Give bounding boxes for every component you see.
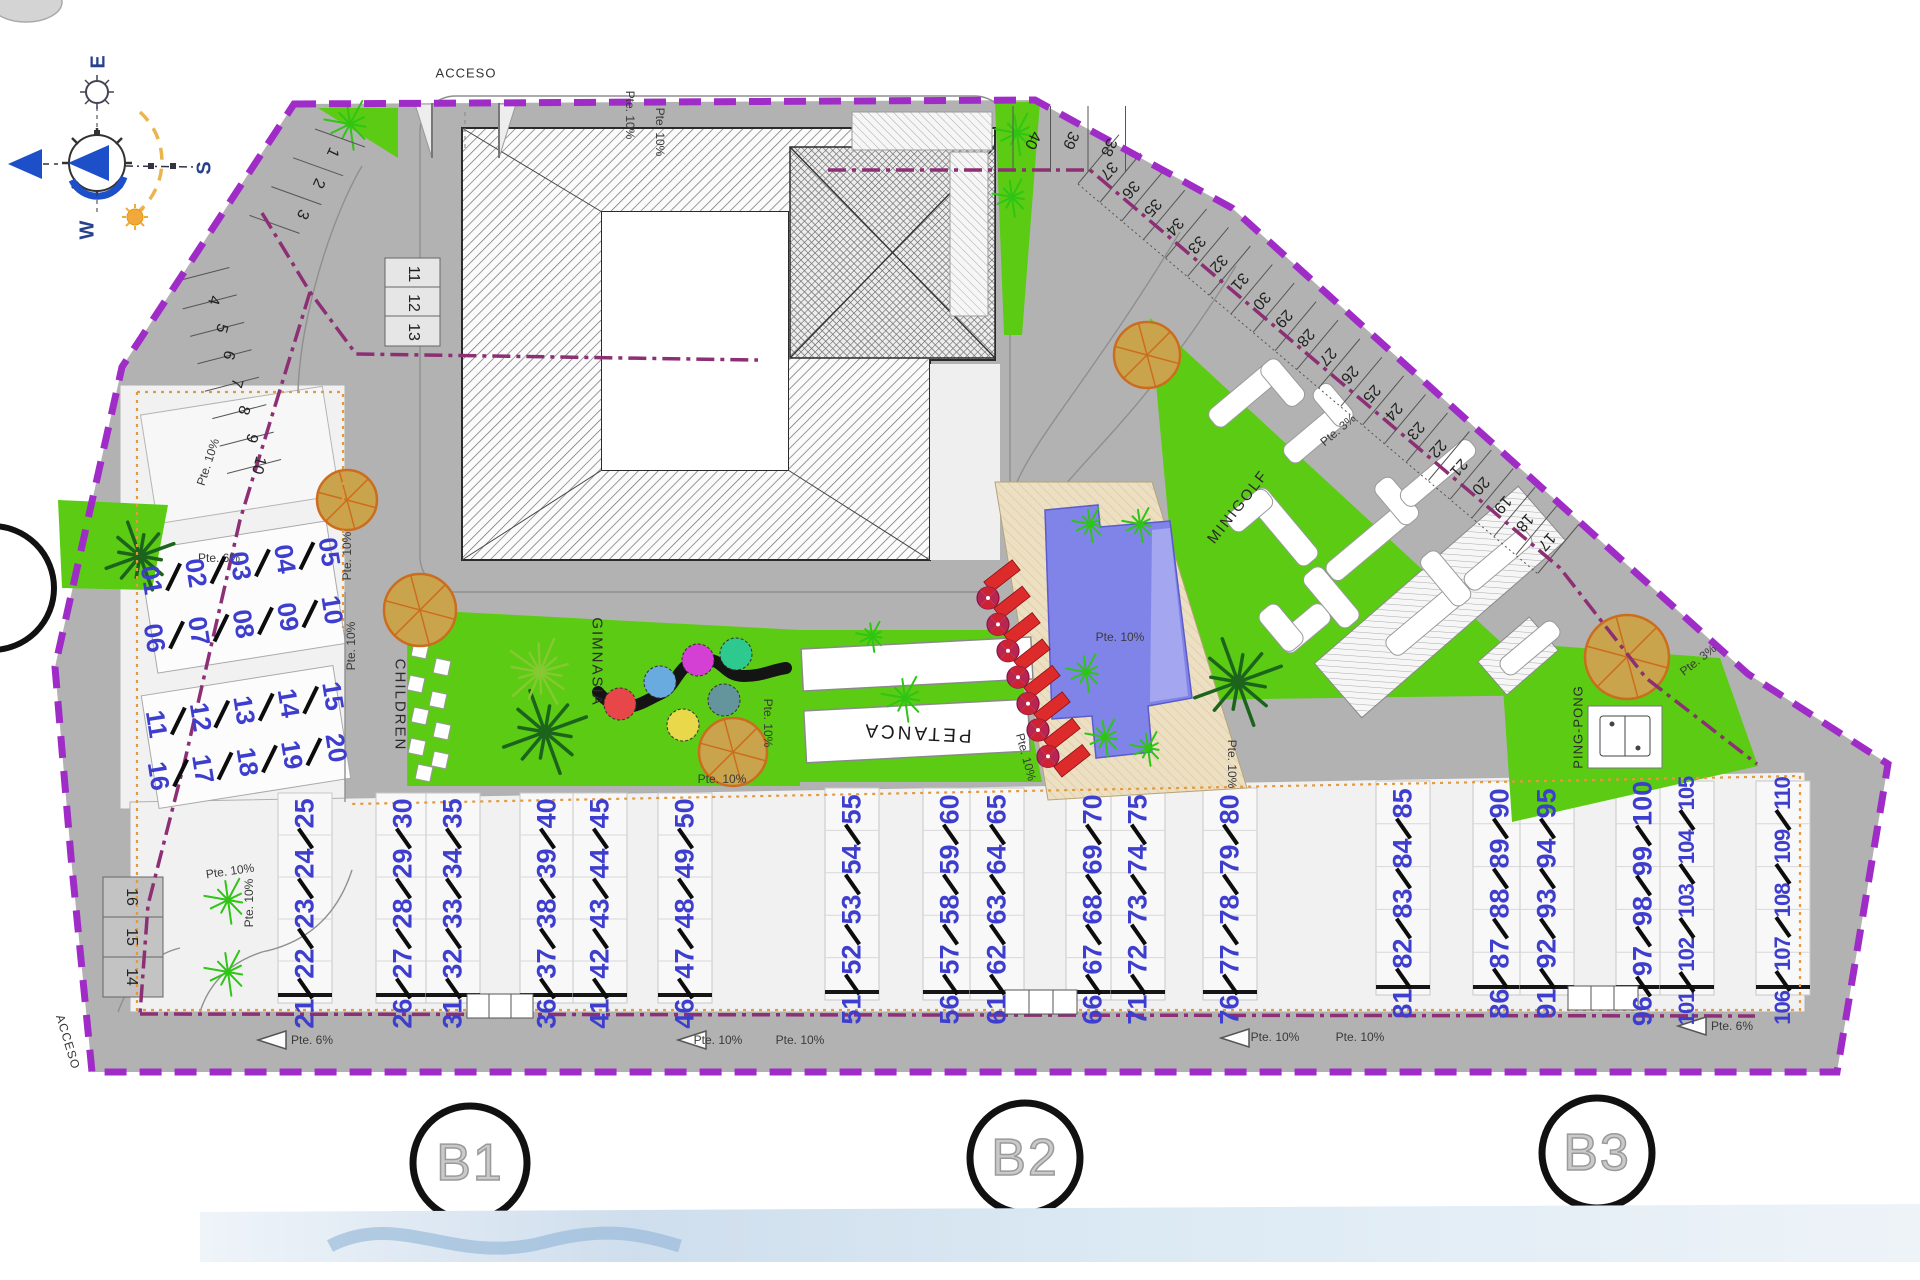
footer-blue-band: [200, 1204, 1920, 1262]
play-square: [407, 675, 425, 693]
tree-icon: [699, 718, 767, 786]
play-square: [433, 722, 451, 740]
play-square: [408, 738, 426, 756]
sun-icon: [127, 209, 143, 225]
tree-icon: [317, 470, 377, 530]
play-square: [433, 658, 451, 676]
play-square: [431, 751, 449, 769]
play-square: [411, 707, 429, 725]
site-plan-drawing: [0, 0, 1920, 1280]
parking-box-14-16: [103, 877, 163, 997]
tree-icon: [1114, 322, 1180, 388]
tree-icon: [384, 574, 456, 646]
pingpong-table-area: [1588, 706, 1662, 768]
site-plan-sheet: E S W ACCESO ACCESO CHILDREN GIMNASIA PE…: [0, 0, 1920, 1280]
compass-rose: [8, 75, 196, 230]
play-square: [415, 764, 433, 782]
main-building: [462, 128, 1000, 560]
play-square: [429, 691, 447, 709]
parking-box-11-13: [385, 258, 440, 346]
left-block-buildings: [138, 386, 350, 808]
